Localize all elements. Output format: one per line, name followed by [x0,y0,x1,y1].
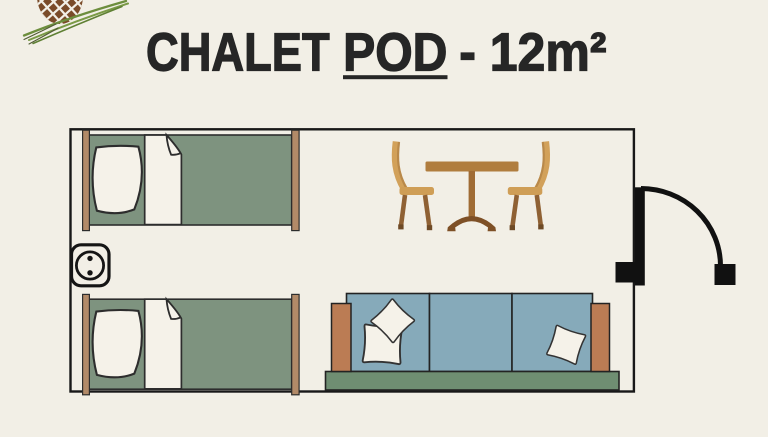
svg-text:POD: POD [343,23,447,83]
svg-text:CHALET: CHALET [146,23,330,83]
svg-text:- 12m²: - 12m² [459,23,606,83]
